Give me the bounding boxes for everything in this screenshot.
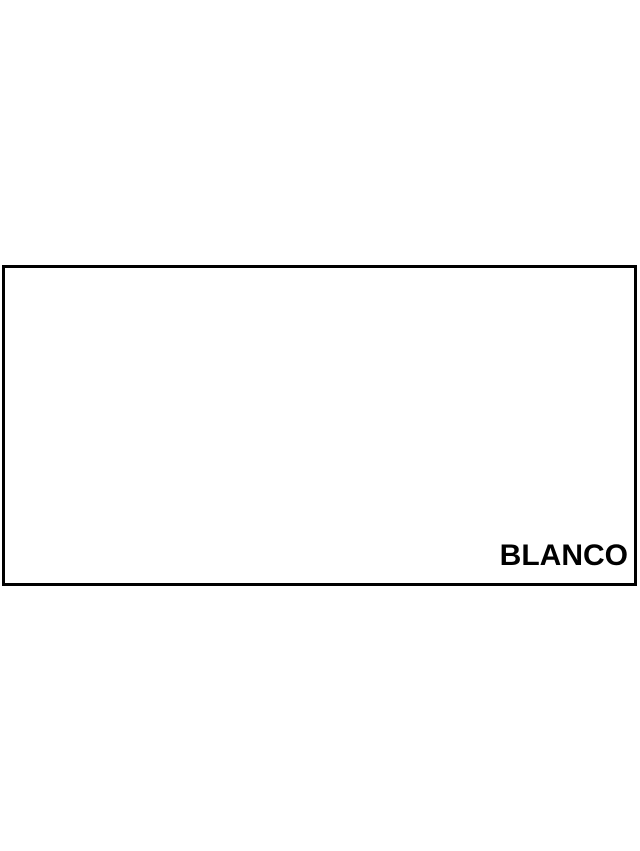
page: { "page": { "background": "#ffffff" }, "…: [0, 0, 640, 851]
swatch-label: BLANCO: [500, 541, 628, 571]
color-swatch-card: BLANCO: [2, 265, 637, 586]
